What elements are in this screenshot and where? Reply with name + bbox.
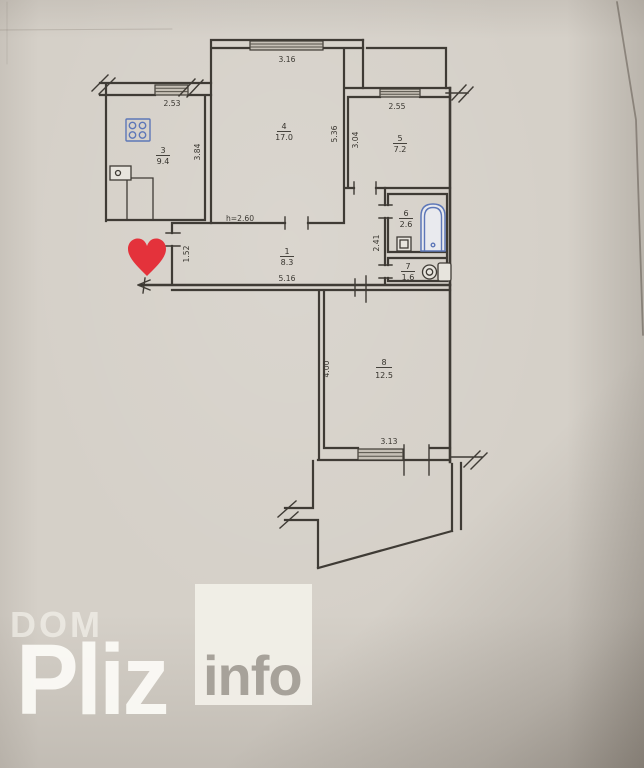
dim-room4-window: 3.16 bbox=[279, 55, 296, 64]
watermark-info-text: info bbox=[203, 648, 302, 704]
room-4-label: 4 17.0 bbox=[275, 122, 293, 142]
dim-room5-side: 3.04 bbox=[351, 131, 360, 148]
room-8-area: 12.5 bbox=[375, 371, 393, 380]
floorplan-photo: { "watermark": { "line1": "DOM", "line2"… bbox=[0, 0, 644, 768]
kitchen-sink-icon bbox=[110, 166, 131, 180]
room-7-label: 7 1.6 bbox=[401, 262, 415, 282]
room-8-number: 8 bbox=[381, 358, 386, 367]
walls bbox=[100, 40, 461, 568]
dim-wet-side: 2.41 bbox=[372, 234, 381, 251]
watermark-pliz-text: Pliz bbox=[16, 630, 167, 730]
room-6-number: 6 bbox=[403, 209, 408, 218]
room-3-label: 3 9.4 bbox=[156, 146, 170, 166]
heart-marker bbox=[128, 238, 166, 276]
room4-window-icon bbox=[250, 41, 323, 50]
room-7-area: 1.6 bbox=[402, 273, 415, 282]
photo-background: 3.16 2.53 2.55 h=2.60 5.16 3.13 3.84 5.3… bbox=[0, 0, 644, 768]
ceiling-height-note: h=2.60 bbox=[226, 214, 254, 223]
room5-window-icon bbox=[380, 89, 420, 97]
dim-room4-side: 5.36 bbox=[330, 125, 339, 142]
room-6-label: 6 2.6 bbox=[399, 209, 413, 229]
dim-room5-window: 2.55 bbox=[389, 102, 406, 111]
room-5-number: 5 bbox=[397, 134, 402, 143]
room-4-number: 4 bbox=[281, 122, 286, 131]
room-6-area: 2.6 bbox=[400, 220, 413, 229]
room8-window-icon bbox=[358, 449, 403, 460]
room-7-number: 7 bbox=[405, 262, 410, 271]
dim-kitchen-top: 2.53 bbox=[164, 99, 181, 108]
room-1-label: 1 8.3 bbox=[280, 247, 294, 267]
dim-room8-window: 3.13 bbox=[381, 437, 398, 446]
room-5-area: 7.2 bbox=[394, 145, 407, 154]
toilet-icon bbox=[423, 263, 452, 281]
room-5-label: 5 7.2 bbox=[393, 134, 407, 154]
stove-icon bbox=[126, 119, 150, 141]
room-8-label: 8 12.5 bbox=[375, 358, 393, 380]
dim-hall-side: 1.52 bbox=[182, 245, 191, 262]
room-3-area: 9.4 bbox=[157, 157, 170, 166]
wash-basin-icon bbox=[397, 237, 411, 251]
room-1-area: 8.3 bbox=[281, 258, 294, 267]
kitchen-window-icon bbox=[155, 85, 188, 95]
room-3-number: 3 bbox=[160, 146, 165, 155]
dim-hall-width: 5.16 bbox=[279, 274, 296, 283]
bathtub-icon bbox=[421, 204, 445, 251]
dim-room8-side: 4.00 bbox=[322, 360, 331, 377]
room-1-number: 1 bbox=[284, 247, 289, 256]
room-4-area: 17.0 bbox=[275, 133, 293, 142]
dim-kitchen-side: 3.84 bbox=[193, 143, 202, 160]
